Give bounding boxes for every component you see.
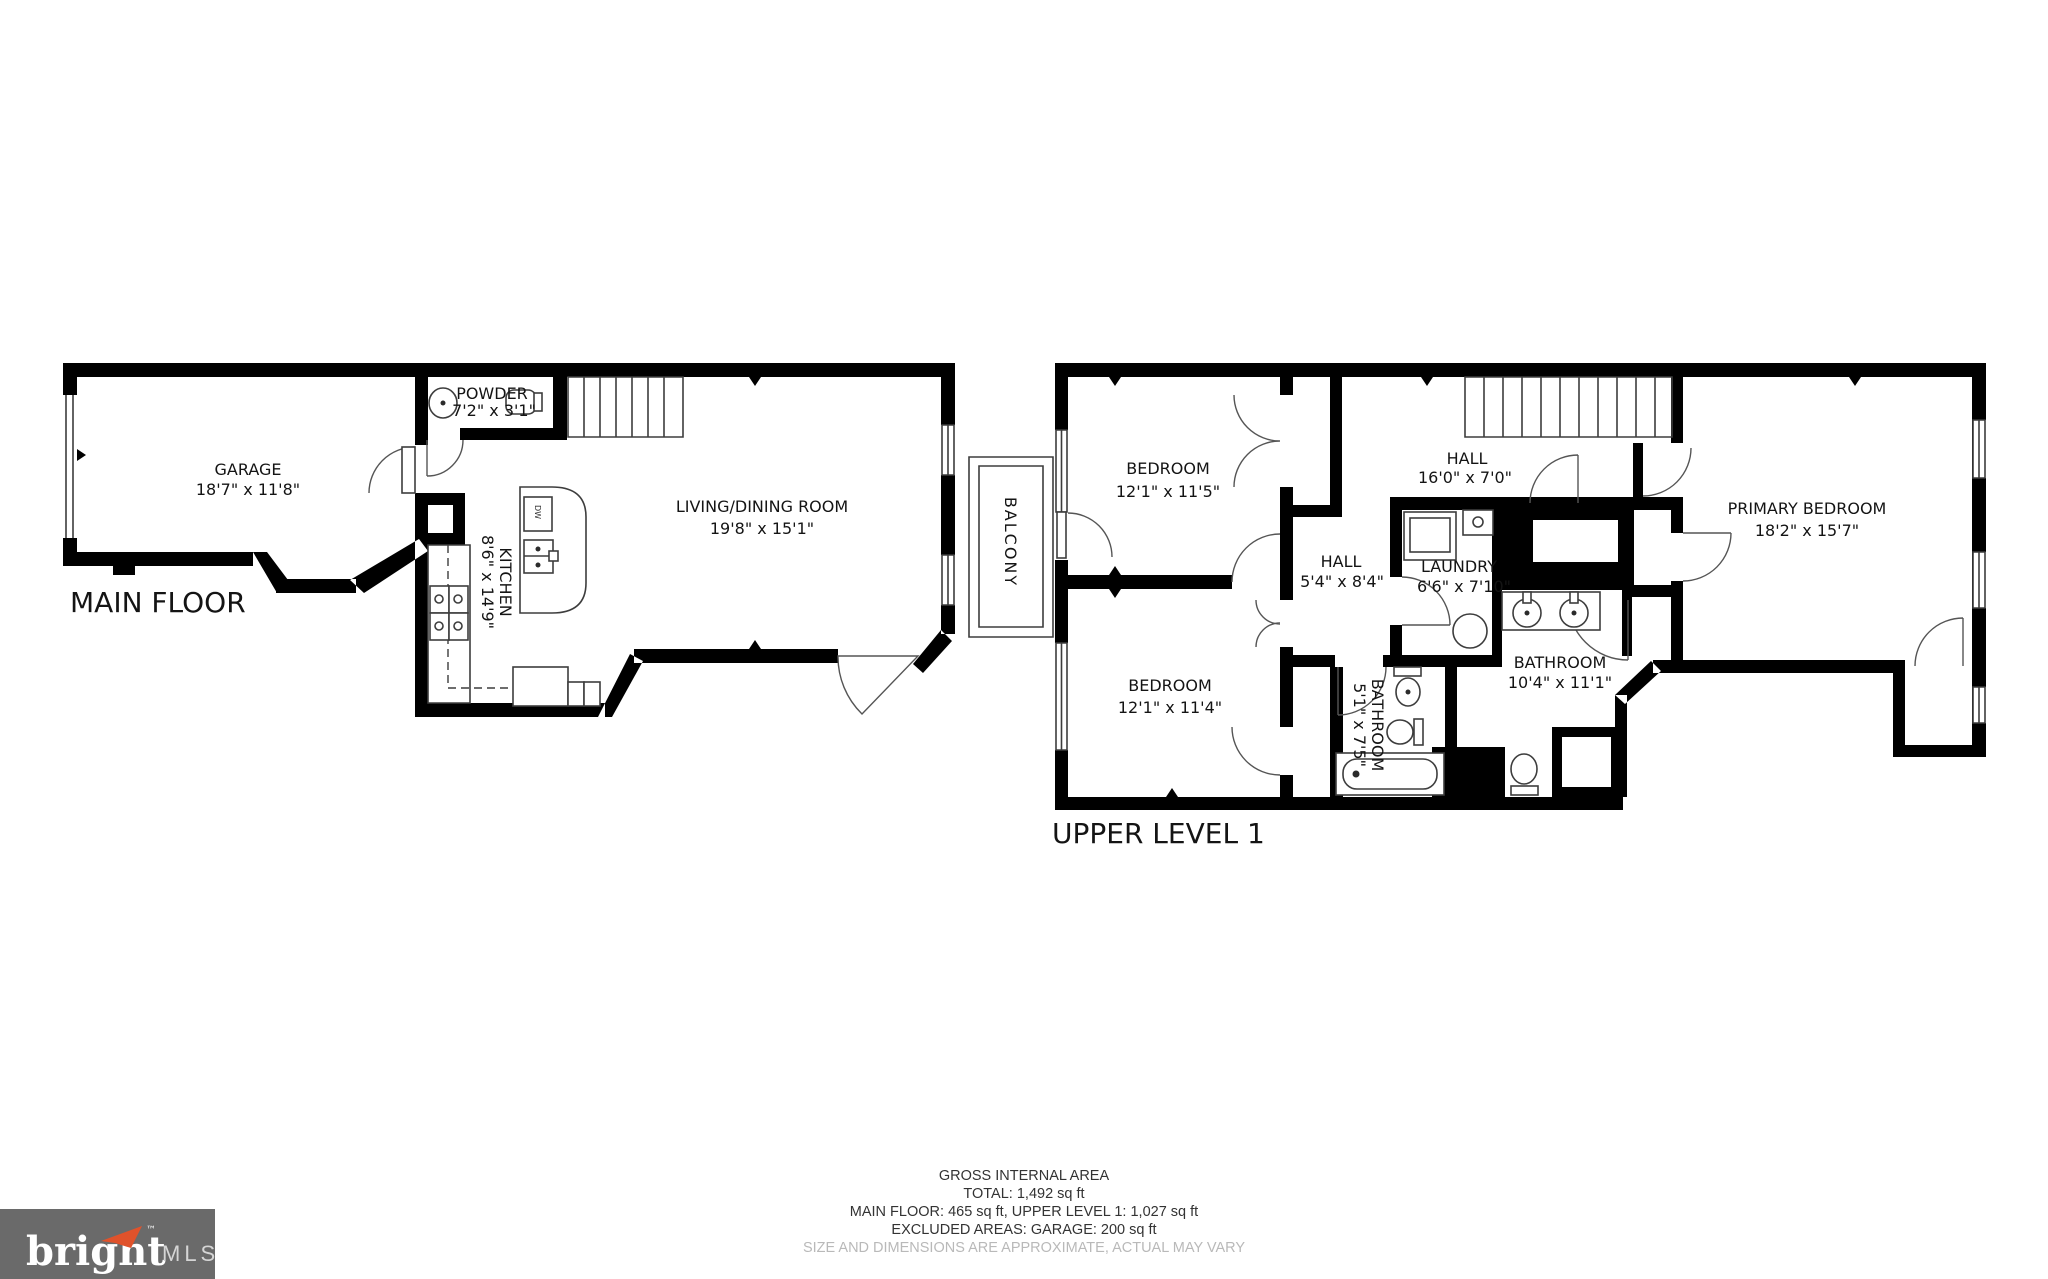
- balcony: BALCONY: [969, 457, 1053, 637]
- vanity-faucet: [1523, 592, 1531, 603]
- bedroom2-label: BEDROOM: [1128, 676, 1212, 695]
- laundry-dims: 6'6" x 7'10": [1417, 577, 1511, 596]
- floor-plan-page: DW GARAGE 18'7" x 11'8" POWDER 7'2" x 3'…: [0, 0, 2048, 1279]
- main-floor-caption: MAIN FLOOR: [70, 586, 246, 619]
- sink-drain: [1406, 690, 1411, 695]
- laundry-sink-icon: [1463, 510, 1493, 535]
- logo-tm: ™: [146, 1225, 156, 1236]
- main-floor-plan: DW GARAGE 18'7" x 11'8" POWDER 7'2" x 3'…: [63, 363, 955, 717]
- area-summary: GROSS INTERNAL AREA TOTAL: 1,492 sq ft M…: [803, 1168, 1245, 1256]
- kitchen-label: KITCHEN: [496, 547, 515, 616]
- summary-floors: MAIN FLOOR: 465 sq ft, UPPER LEVEL 1: 1,…: [850, 1204, 1198, 1220]
- summary-title: GROSS INTERNAL AREA: [939, 1168, 1110, 1184]
- powder-dims: 7'2" x 3'1": [452, 401, 536, 420]
- stove-burner: [430, 613, 449, 640]
- main-bath-toilet-icon: [1511, 754, 1537, 784]
- hall-upper-dims: 16'0" x 7'0": [1418, 468, 1512, 487]
- kitchen-cabinet: [584, 682, 600, 706]
- dishwasher-label: DW: [533, 505, 542, 519]
- summary-disclaimer: SIZE AND DIMENSIONS ARE APPROXIMATE, ACT…: [803, 1240, 1245, 1256]
- upper-level-caption: UPPER LEVEL 1: [1052, 817, 1265, 850]
- garage-dims: 18'7" x 11'8": [196, 480, 300, 499]
- hall-upper-label: HALL: [1447, 449, 1488, 468]
- washer-drum: [1410, 518, 1450, 552]
- hall-lower-dims: 5'4" x 8'4": [1300, 572, 1384, 591]
- primary-bedroom-dims: 18'2" x 15'7": [1755, 521, 1859, 540]
- upper-level-walls: [1055, 363, 1986, 810]
- summary-excluded: EXCLUDED AREAS: GARAGE: 200 sq ft: [891, 1222, 1156, 1238]
- laundry-label: LAUNDRY: [1421, 557, 1497, 576]
- balcony-door-leaf: [1057, 512, 1066, 558]
- small-bath-label: BATHROOM: [1368, 679, 1387, 772]
- small-bath-label-group: BATHROOM 5'1" x 7'5": [1350, 679, 1387, 772]
- garage-label: GARAGE: [215, 460, 282, 479]
- floor-plan-canvas: DW GARAGE 18'7" x 11'8" POWDER 7'2" x 3'…: [0, 0, 2048, 1279]
- small-bath-sink-icon: [1394, 667, 1421, 676]
- front-entry-door-swing: [838, 656, 918, 714]
- laundry-basket-icon: [1453, 614, 1487, 648]
- small-bath-toilet-tank: [1414, 719, 1423, 745]
- sink-drain: [1525, 611, 1530, 616]
- fridge-icon: [513, 667, 568, 706]
- powder-sink-drain: [441, 401, 446, 406]
- logo-mls-text: MLS: [162, 1241, 219, 1266]
- small-bath-dims: 5'1" x 7'5": [1350, 683, 1369, 767]
- vanity-faucet: [1570, 592, 1578, 603]
- island-faucet: [549, 551, 558, 561]
- sink-drain: [536, 563, 541, 568]
- balcony-label: BALCONY: [1001, 497, 1020, 587]
- summary-total: TOTAL: 1,492 sq ft: [963, 1186, 1084, 1202]
- primary-bedroom-label: PRIMARY BEDROOM: [1728, 499, 1887, 518]
- kitchen-cabinet: [568, 682, 584, 706]
- main-floor-door-arcs: [369, 440, 463, 493]
- bathtub-drain: [1353, 771, 1360, 778]
- sink-drain: [536, 547, 541, 552]
- garage-entry-door-leaf: [402, 447, 415, 493]
- living-dining-dims: 19'8" x 15'1": [710, 519, 814, 538]
- balcony-label-group: BALCONY: [1001, 497, 1020, 587]
- main-bath-label: BATHROOM: [1514, 653, 1607, 672]
- bright-mls-logo: bright ™ MLS: [0, 1209, 219, 1279]
- bedroom2-dims: 12'1" x 11'4": [1118, 698, 1222, 717]
- stove-burner: [449, 586, 468, 613]
- main-bath-toilet-tank: [1511, 786, 1538, 795]
- entry-closet-interior: [428, 505, 453, 533]
- kitchen-label-group: KITCHEN 8'6" x 14'9": [478, 535, 515, 629]
- main-bath-dims: 10'4" x 11'1": [1508, 673, 1612, 692]
- bedroom1-label: BEDROOM: [1126, 459, 1210, 478]
- stove-burner: [449, 613, 468, 640]
- small-bath-toilet-icon: [1387, 720, 1413, 744]
- upper-level-plan: BEDROOM 12'1" x 11'5" BEDROOM 12'1" x 11…: [1052, 363, 1986, 850]
- kitchen-dims: 8'6" x 14'9": [478, 535, 497, 629]
- stove-icon: [430, 586, 449, 613]
- bedroom1-dims: 12'1" x 11'5": [1116, 482, 1220, 501]
- living-dining-label: LIVING/DINING ROOM: [676, 497, 848, 516]
- hall-lower-label: HALL: [1321, 552, 1362, 571]
- sink-drain: [1572, 611, 1577, 616]
